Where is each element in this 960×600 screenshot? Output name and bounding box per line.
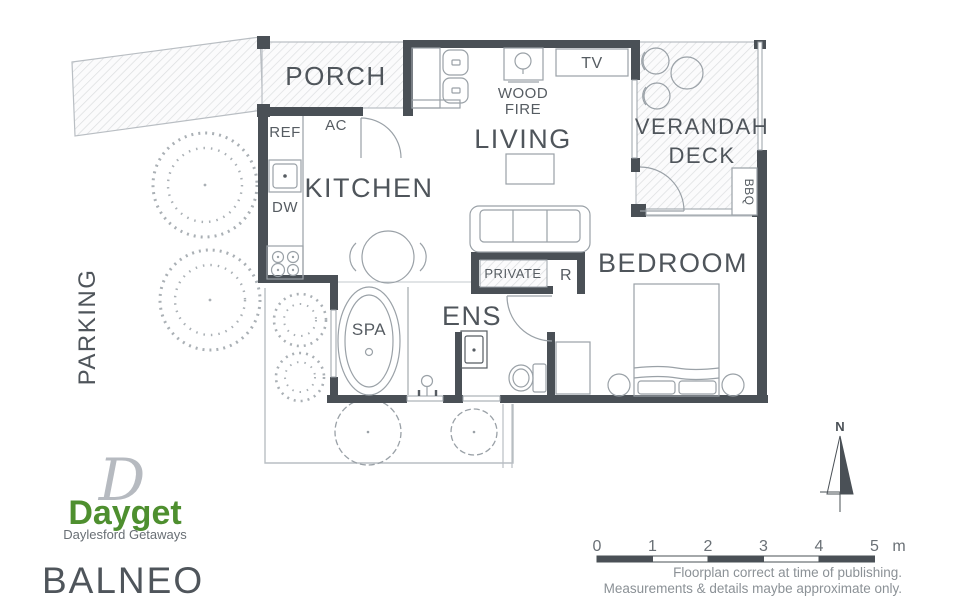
patio-tree-small bbox=[451, 409, 497, 455]
vanity bbox=[461, 331, 487, 368]
woodfire-label-line1: WOOD bbox=[498, 85, 548, 102]
bedside-table-left bbox=[608, 374, 630, 396]
coffee-table bbox=[506, 154, 554, 184]
scale-tick-0: 0 bbox=[593, 538, 602, 555]
sofa bbox=[470, 206, 590, 252]
dining-table bbox=[350, 231, 426, 283]
disclaimer-line1: Floorplan correct at time of publishing. bbox=[673, 565, 902, 580]
kitchen-label: KITCHEN bbox=[304, 173, 433, 203]
bedroom-label: BEDROOM bbox=[598, 248, 748, 278]
bed bbox=[634, 284, 719, 396]
shower-fixture bbox=[419, 376, 436, 397]
verandah-label-line2: DECK bbox=[668, 143, 735, 168]
tv-label: TV bbox=[581, 55, 602, 72]
private-label: PRIVATE bbox=[484, 266, 541, 281]
scale-bar-segments bbox=[597, 556, 875, 562]
floorplan-page: PORCH KITCHEN LIVING VERANDAH DECK BEDRO… bbox=[0, 0, 960, 600]
floorplan-canvas: PORCH KITCHEN LIVING VERANDAH DECK BEDRO… bbox=[0, 0, 960, 600]
bbq-label: BBQ bbox=[742, 179, 756, 206]
parking-label: PARKING bbox=[74, 269, 101, 386]
patio-tree-large bbox=[335, 399, 401, 465]
north-label: N bbox=[835, 419, 844, 434]
scale-tick-5: 5 bbox=[870, 538, 879, 555]
scale-tick-1: 1 bbox=[648, 538, 657, 555]
scale-tick-3: 3 bbox=[759, 538, 768, 555]
scale-tick-4: 4 bbox=[815, 538, 824, 555]
entry-door bbox=[361, 118, 401, 158]
dw-label: DW bbox=[272, 199, 298, 216]
tree-small-upper bbox=[274, 294, 326, 346]
spa-bath bbox=[338, 287, 400, 395]
north-arrow: N bbox=[820, 419, 853, 512]
porch-label: PORCH bbox=[285, 61, 386, 91]
footer-disclaimer: Floorplan correct at time of publishing.… bbox=[604, 565, 902, 596]
ens-door bbox=[507, 296, 552, 341]
driveway bbox=[72, 37, 263, 136]
robe-label: R bbox=[560, 267, 572, 284]
disclaimer-line2: Measurements & details maybe approximate… bbox=[604, 581, 902, 596]
ens-label: ENS bbox=[442, 301, 502, 331]
sink bbox=[269, 160, 301, 192]
wood-fire-unit bbox=[504, 48, 543, 82]
bedroom-cupboard bbox=[556, 342, 590, 394]
stool-2 bbox=[443, 78, 468, 103]
tree-cluster-middle bbox=[160, 250, 260, 350]
ac-label: AC bbox=[325, 117, 347, 134]
spa-label: SPA bbox=[352, 320, 386, 339]
brand-tagline: Daylesford Getaways bbox=[63, 527, 187, 542]
verandah-label-line1: VERANDAH bbox=[635, 114, 769, 139]
scale-bar: 0 1 2 3 4 5 m bbox=[593, 538, 906, 562]
bedroom-fittings bbox=[556, 284, 744, 396]
garden-path bbox=[503, 404, 512, 468]
brand-logo: D Dayget Daylesford Getaways bbox=[63, 446, 187, 542]
cooktop bbox=[267, 246, 303, 279]
tree-small-lower bbox=[276, 353, 324, 401]
stool-1 bbox=[443, 50, 468, 75]
living-label: LIVING bbox=[474, 124, 572, 154]
scale-tick-2: 2 bbox=[704, 538, 713, 555]
woodfire-label-line2: FIRE bbox=[505, 101, 541, 118]
toilet bbox=[509, 364, 546, 392]
tree-cluster-top bbox=[153, 133, 257, 237]
ensuite-fittings bbox=[419, 331, 546, 396]
property-title: BALNEO bbox=[42, 560, 204, 600]
bedside-table-right bbox=[722, 374, 744, 396]
scale-unit: m bbox=[892, 538, 905, 555]
ref-label: REF bbox=[269, 124, 301, 141]
